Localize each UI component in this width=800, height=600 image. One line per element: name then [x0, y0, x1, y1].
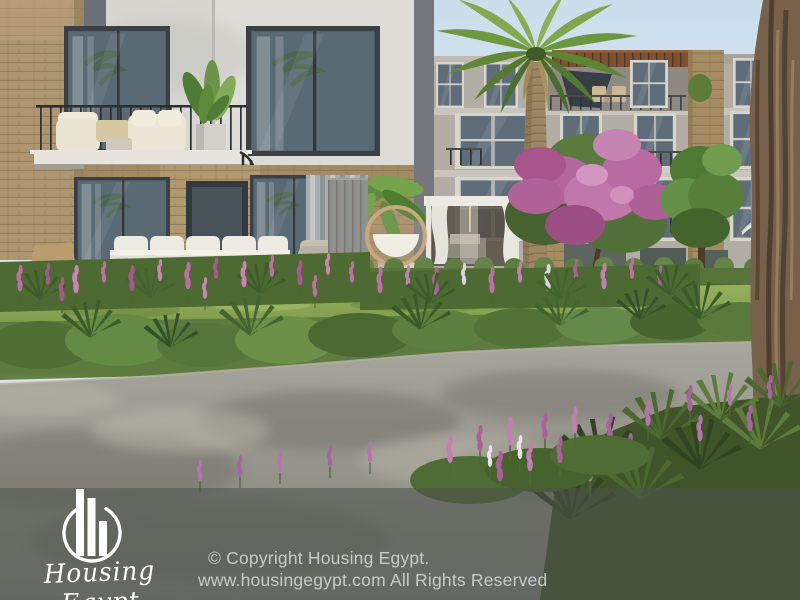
copyright-text: © Copyright Housing Egypt. www.housingeg…	[198, 548, 547, 591]
villa-flower-bed	[0, 252, 370, 313]
real-estate-render: Housing Egypt © Copyright Housing Egypt.…	[0, 0, 800, 600]
copyright-line2: www.housingegypt.com All Rights Reserved	[198, 570, 547, 592]
terrace-plant	[688, 74, 712, 102]
villa-window-upper-right	[246, 26, 380, 156]
copyright-line1: © Copyright Housing Egypt.	[208, 548, 547, 570]
brand-name: Housing Egypt	[8, 555, 192, 600]
watermark-overlay: Housing Egypt © Copyright Housing Egypt.…	[0, 488, 800, 600]
